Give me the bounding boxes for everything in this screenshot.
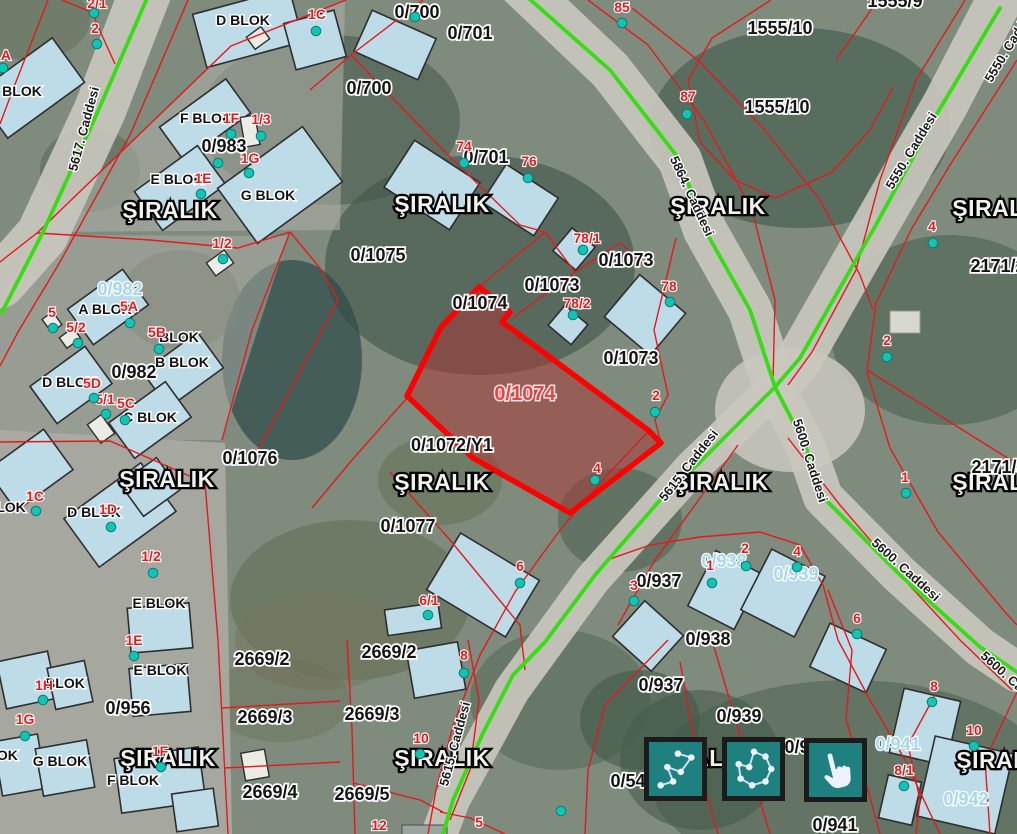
parcel-number-label: 2171/3 <box>971 457 1017 477</box>
address-point-marker <box>38 695 48 705</box>
hand-pointer-icon <box>813 747 859 793</box>
parcel-number-label: 2171/2 <box>970 256 1017 276</box>
address-point-marker <box>882 352 892 362</box>
district-label: ŞIRALIK <box>394 469 490 495</box>
address-point-marker <box>901 488 911 498</box>
district-label: ŞIRALIK <box>394 191 490 217</box>
door-number-label: 78 <box>661 278 677 294</box>
door-number-label: 78/1 <box>573 230 600 246</box>
address-point-marker <box>515 578 525 588</box>
building-block-label: D BLOK <box>216 12 270 28</box>
door-number-label: 78/2 <box>563 295 590 311</box>
address-point-marker <box>125 318 135 328</box>
address-point-marker <box>213 158 223 168</box>
parcel-number-label-alt: 0/982 <box>97 279 142 299</box>
address-point-marker <box>568 310 578 320</box>
door-number-label: 5B <box>148 324 166 340</box>
door-number-label: 5C <box>117 395 135 411</box>
address-point-marker <box>20 731 30 741</box>
address-point-marker <box>899 781 909 791</box>
address-point-marker <box>48 323 58 333</box>
building-block-label: E BLOK <box>134 662 187 678</box>
parcel-number-label: 0/982 <box>111 362 156 382</box>
parcel-number-label: 0/1075 <box>350 245 405 265</box>
door-number-label: 1F <box>152 743 169 759</box>
parcel-number-label: 0/1074 <box>452 293 507 313</box>
address-point-marker <box>459 668 469 678</box>
door-number-label: 1D <box>99 501 117 517</box>
polygon-nodes-icon <box>731 746 777 792</box>
building-block-label: BLOK <box>2 83 42 99</box>
parcel-number-label: 2669/3 <box>237 707 292 727</box>
building-block-label: F BLOK <box>107 772 159 788</box>
address-point-marker <box>928 238 938 248</box>
address-point-marker <box>927 697 937 707</box>
door-number-label: 76 <box>521 153 537 169</box>
address-point-marker <box>31 506 41 516</box>
door-number-label: 5 <box>475 814 483 830</box>
address-point-marker <box>792 562 802 572</box>
address-point-marker <box>629 596 639 606</box>
address-point-marker <box>459 158 469 168</box>
address-point-marker <box>129 651 139 661</box>
polyline-nodes-icon <box>653 746 699 792</box>
building-block-label: BLOK <box>0 747 18 763</box>
parcel-number-label: 0/54 <box>610 771 645 791</box>
door-number-label: 1 <box>706 557 714 573</box>
address-point-marker <box>415 749 425 759</box>
address-point-marker <box>156 762 166 772</box>
door-number-label: 1C <box>26 488 44 504</box>
address-point-marker <box>73 338 83 348</box>
door-number-label: 1E <box>125 632 142 648</box>
parcel-number-label-alt: 0/941 <box>875 734 920 754</box>
address-point-marker <box>665 297 675 307</box>
door-number-label: 4 <box>793 543 801 559</box>
measure-polyline-button[interactable] <box>644 737 707 801</box>
door-number-label: 1 <box>901 469 909 485</box>
building-block-label: C BLOK <box>123 409 177 425</box>
building-block-label: E BLOK <box>133 595 186 611</box>
parcel-number-label: 0/700 <box>346 78 391 98</box>
building-block-label: G BLOK <box>241 187 295 203</box>
district-label: ŞIRALIK <box>119 466 215 492</box>
door-number-label: 6 <box>853 610 861 626</box>
address-point-marker <box>106 522 116 532</box>
door-number-label: 85 <box>614 0 630 15</box>
door-number-label: 6/1 <box>419 592 439 608</box>
door-number-label: 74 <box>456 138 472 154</box>
address-point-marker <box>148 568 158 578</box>
door-number-label: 2 <box>883 332 891 348</box>
door-number-label: 6 <box>516 558 524 574</box>
address-point-marker <box>226 129 236 139</box>
address-point-marker <box>523 173 533 183</box>
parcel-number-label-alt: 0/942 <box>943 789 988 809</box>
door-number-label: 4 <box>593 460 601 476</box>
parcel-number-label: 0/1072/Y1 <box>411 435 493 455</box>
highlighted-parcel-label: 0/1074 <box>494 383 556 405</box>
address-point-marker <box>0 63 8 73</box>
door-number-label: 4 <box>928 218 936 234</box>
address-point-marker <box>617 18 627 28</box>
door-number-label: 8 <box>930 678 938 694</box>
door-number-label: 2 <box>91 20 99 36</box>
building-block-label: LOK <box>0 499 26 515</box>
address-point-marker <box>244 168 254 178</box>
parcel-number-label: 0/1073 <box>524 275 579 295</box>
address-point-marker <box>101 409 111 419</box>
parcel-number-label: 0/1077 <box>380 516 435 536</box>
parcel-number-label: 2669/4 <box>242 782 297 802</box>
address-point-marker <box>969 741 979 751</box>
parcel-number-label: 1555/9 <box>867 0 922 11</box>
address-point-marker <box>120 415 130 425</box>
door-number-label: 8/1 <box>894 762 914 778</box>
parcel-number-label: 0/701 <box>447 23 492 43</box>
parcel-number-label: 1555/10 <box>744 97 809 117</box>
parcel-number-label: 0/938 <box>685 629 730 649</box>
address-point-marker <box>89 8 99 18</box>
address-point-marker <box>218 254 228 264</box>
pointer-select-button[interactable] <box>804 738 867 802</box>
door-number-label: 5/2 <box>66 319 86 335</box>
door-number-label: 1G <box>241 150 260 166</box>
door-number-label: 1E <box>194 170 211 186</box>
parcel-number-label: 0/937 <box>636 571 681 591</box>
door-number-label: 5D <box>83 375 101 391</box>
address-point-marker <box>741 561 751 571</box>
door-number-label: 5A <box>120 298 138 314</box>
district-label: ŞIRALIK <box>952 195 1017 221</box>
address-point-marker <box>682 109 692 119</box>
door-number-label: 12 <box>371 817 387 833</box>
door-number-label: 2 <box>741 540 749 556</box>
door-number-label: 1/2 <box>212 235 232 251</box>
district-label: ŞIRALIK <box>122 197 218 223</box>
door-number-label: 5 <box>48 304 56 320</box>
address-point-marker <box>410 12 420 22</box>
address-point-marker <box>89 393 99 403</box>
address-point-marker <box>650 407 660 417</box>
address-point-marker <box>92 39 102 49</box>
door-number-label: 1H <box>35 677 53 693</box>
parcel-number-label: 2669/2 <box>234 649 289 669</box>
parcel-number-label: 2669/3 <box>344 704 399 724</box>
door-number-label: 1G <box>16 711 35 727</box>
door-number-label: 3 <box>630 577 638 593</box>
parcel-number-label: 0/1073 <box>598 250 653 270</box>
building-block-label: G BLOK <box>33 753 87 769</box>
address-point-marker <box>556 806 566 816</box>
address-point-marker <box>256 131 266 141</box>
door-number-label: 87 <box>680 88 696 104</box>
parcel-number-label: 2669/5 <box>334 784 389 804</box>
address-point-marker <box>196 189 206 199</box>
door-number-label: 10 <box>413 730 429 746</box>
parcel-number-label: 0/939 <box>716 706 761 726</box>
address-point-marker <box>578 245 588 255</box>
door-number-label: 1/3 <box>251 111 271 127</box>
address-point-marker <box>852 629 862 639</box>
door-number-label: 2 <box>652 387 660 403</box>
parcel-number-label: 2669/2 <box>361 642 416 662</box>
door-number-label: 1A <box>0 47 11 63</box>
address-point-marker <box>707 578 717 588</box>
address-point-marker <box>154 344 164 354</box>
door-number-label: 1F <box>223 110 240 126</box>
parcel-number-label: 0/1076 <box>222 448 277 468</box>
building-block-label: B BLOK <box>155 354 209 370</box>
parcel-number-label: 0/1073 <box>603 348 658 368</box>
door-number-label: 1/2 <box>141 548 161 564</box>
door-number-label: 10 <box>966 722 982 738</box>
parcel-number-label: 0/956 <box>105 698 150 718</box>
parcel-number-label: 1555/10 <box>747 18 812 38</box>
parcel-number-label: 0/937 <box>638 675 683 695</box>
door-number-label: 1C <box>308 6 326 22</box>
district-label: ŞIRALIK <box>956 747 1017 773</box>
measure-polygon-button[interactable] <box>722 737 785 801</box>
address-point-marker <box>311 26 321 36</box>
map-canvas: ŞIRALIKŞIRALIKŞIRALIKŞIRALIKŞIRALIKŞIRAL… <box>0 0 1017 834</box>
address-point-marker <box>590 475 600 485</box>
door-number-label: 8 <box>460 647 468 663</box>
parcel-number-label: 0/941 <box>812 815 857 834</box>
address-point-marker <box>423 610 433 620</box>
map-viewport[interactable]: ŞIRALIKŞIRALIKŞIRALIKŞIRALIKŞIRALIKŞIRAL… <box>0 0 1017 834</box>
